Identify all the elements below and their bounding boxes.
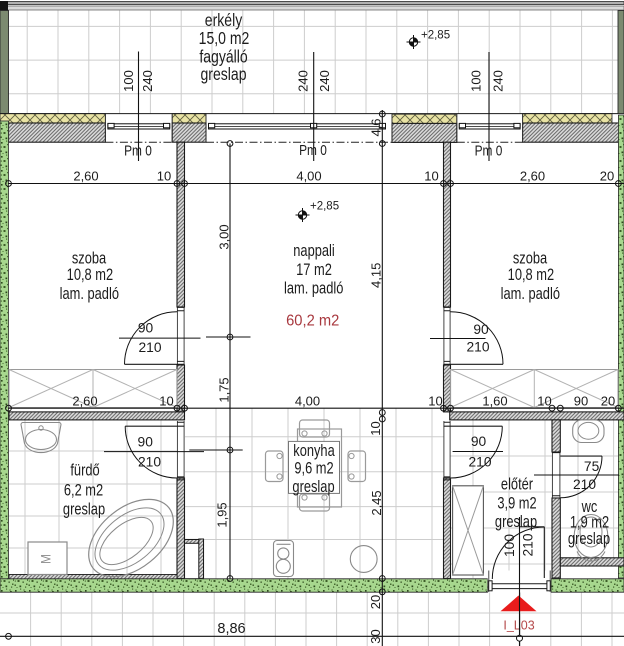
svg-text:1,60: 1,60 — [482, 393, 507, 408]
svg-text:210: 210 — [573, 477, 596, 492]
svg-text:4,6: 4,6 — [369, 118, 384, 136]
svg-text:4,00: 4,00 — [296, 169, 321, 184]
svg-text:greslap: greslap — [292, 479, 334, 497]
svg-text:2,60: 2,60 — [73, 169, 98, 184]
svg-text:8,86: 8,86 — [217, 621, 245, 637]
svg-text:10: 10 — [537, 393, 551, 408]
svg-text:greslap: greslap — [200, 64, 246, 84]
svg-text:10: 10 — [157, 169, 171, 184]
svg-text:210: 210 — [468, 455, 491, 470]
svg-text:90: 90 — [473, 322, 489, 337]
svg-text:+2,85: +2,85 — [310, 201, 339, 213]
svg-text:210: 210 — [138, 340, 161, 355]
svg-text:1,95: 1,95 — [215, 502, 230, 527]
svg-text:lam. padló: lam. padló — [284, 280, 343, 298]
svg-text:10: 10 — [424, 169, 438, 184]
svg-text:3,9 m2: 3,9 m2 — [497, 495, 536, 513]
svg-text:Pm 0: Pm 0 — [475, 142, 503, 158]
svg-text:20: 20 — [368, 595, 383, 609]
svg-text:M: M — [38, 554, 54, 564]
svg-text:greslap: greslap — [568, 531, 610, 549]
svg-text:60,2 m2: 60,2 m2 — [286, 312, 339, 329]
svg-text:4,15: 4,15 — [369, 263, 384, 288]
svg-text:+2,85: +2,85 — [421, 30, 450, 42]
svg-text:210: 210 — [138, 455, 161, 470]
svg-text:3,00: 3,00 — [217, 224, 232, 249]
svg-text:1,75: 1,75 — [217, 377, 232, 402]
svg-text:90: 90 — [138, 321, 154, 336]
svg-text:210: 210 — [466, 340, 489, 355]
svg-text:2,60: 2,60 — [520, 169, 545, 184]
svg-text:240: 240 — [491, 70, 506, 92]
svg-text:17 m2: 17 m2 — [296, 261, 332, 279]
svg-text:greslap: greslap — [495, 514, 537, 532]
svg-text:1,9 m2: 1,9 m2 — [570, 514, 609, 532]
svg-text:2,45: 2,45 — [369, 490, 384, 515]
svg-text:előtér: előtér — [501, 476, 533, 494]
svg-text:210: 210 — [521, 533, 536, 556]
svg-text:10,8 m2: 10,8 m2 — [67, 267, 113, 285]
svg-text:10,8 m2: 10,8 m2 — [508, 267, 554, 285]
svg-text:szoba: szoba — [72, 250, 107, 268]
svg-text:konyha: konyha — [293, 443, 335, 461]
svg-text:szoba: szoba — [513, 250, 548, 268]
svg-text:75: 75 — [584, 459, 600, 474]
svg-text:240: 240 — [140, 70, 155, 92]
svg-text:Pm 0: Pm 0 — [299, 142, 327, 158]
svg-text:100: 100 — [121, 70, 136, 92]
svg-text:greslap: greslap — [63, 501, 105, 519]
svg-text:100: 100 — [469, 70, 484, 92]
svg-text:10: 10 — [159, 393, 173, 408]
svg-text:100: 100 — [502, 534, 517, 557]
svg-text:2,60: 2,60 — [72, 393, 97, 408]
svg-text:240: 240 — [296, 70, 311, 92]
svg-text:lam. padló: lam. padló — [501, 286, 560, 304]
svg-text:Pm 0: Pm 0 — [124, 142, 152, 158]
svg-text:90: 90 — [471, 434, 487, 449]
svg-text:fürdő: fürdő — [70, 462, 99, 480]
svg-text:20: 20 — [601, 393, 615, 408]
svg-text:lam. padló: lam. padló — [60, 286, 119, 304]
svg-text:240: 240 — [317, 70, 332, 92]
svg-text:10: 10 — [428, 393, 442, 408]
svg-text:9,6 m2: 9,6 m2 — [294, 460, 333, 478]
svg-text:4,00: 4,00 — [295, 393, 320, 408]
svg-text:20: 20 — [600, 169, 614, 184]
svg-text:15,0 m2: 15,0 m2 — [199, 28, 250, 48]
svg-text:90: 90 — [574, 393, 588, 408]
svg-text:90: 90 — [138, 435, 154, 450]
svg-text:10: 10 — [368, 421, 383, 435]
svg-text:6,2 m2: 6,2 m2 — [64, 482, 103, 500]
svg-text:nappali: nappali — [293, 243, 334, 261]
